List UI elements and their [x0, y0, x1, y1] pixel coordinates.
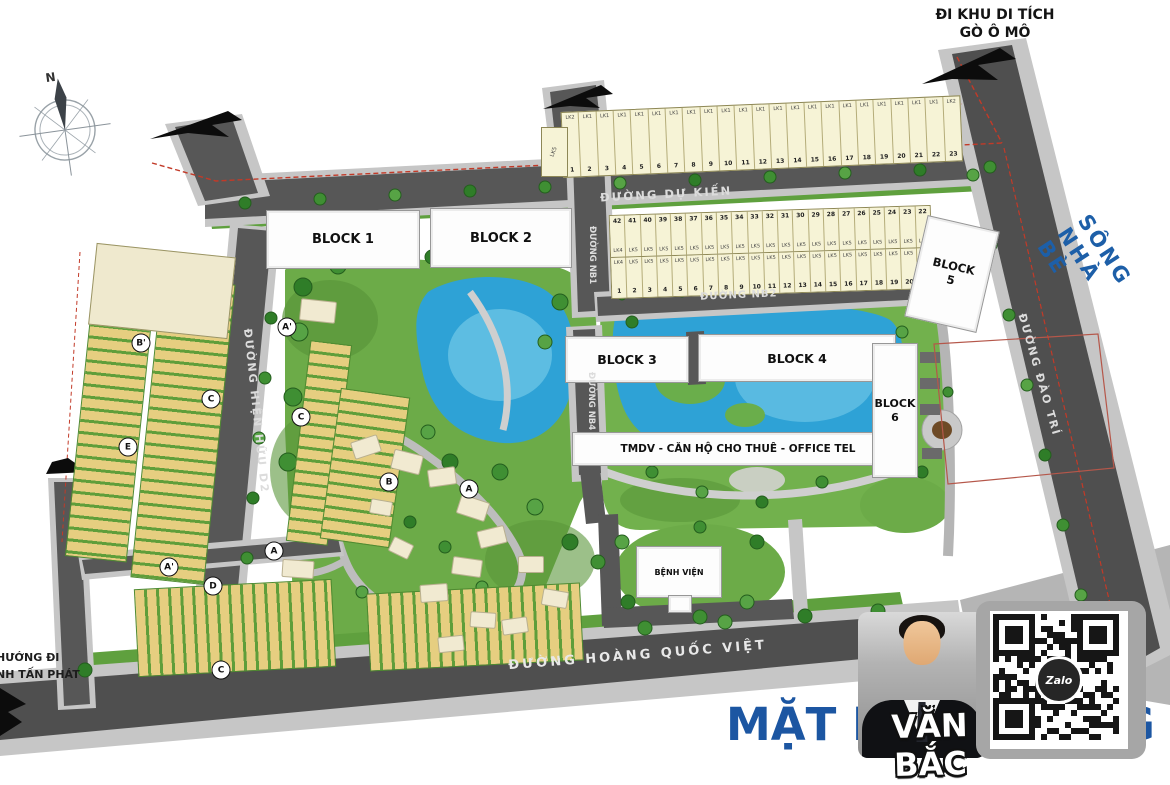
- di-tich-line2: GÒ Ô MÔ: [905, 24, 1085, 42]
- lot-cell: 37LK5: [685, 213, 702, 254]
- lot-cell: 40LK5: [639, 215, 656, 256]
- lot-cell: 24LK5: [884, 207, 901, 248]
- svg-text:N: N: [45, 70, 57, 85]
- building-block4: BLOCK 4: [698, 334, 896, 382]
- lot-cell: LK517: [854, 250, 871, 290]
- block6-label: BLOCK: [875, 397, 916, 410]
- lot-cell: LK52: [625, 257, 642, 297]
- lot-cell: 31LK5: [777, 210, 794, 251]
- lot-cell: 26LK5: [853, 208, 870, 249]
- building-hospital-wing: [668, 595, 692, 613]
- lot-cell: LK516: [839, 250, 856, 290]
- building-tmdv: TMDV - CĂN HỘ CHO THUÊ - OFFICE TEL: [572, 432, 904, 466]
- lk5-corner-lot: LK5: [541, 127, 568, 177]
- lot-cell: LK58: [717, 254, 734, 294]
- lot-cell: LK59: [732, 254, 749, 294]
- villa-lot: [437, 635, 465, 654]
- block1-label: BLOCK 1: [312, 232, 374, 247]
- block6-number: 6: [891, 411, 899, 424]
- lot-cell: 29LK5: [807, 209, 824, 250]
- road-label-nb1: ĐƯỜNG NB1: [587, 226, 597, 284]
- lot-cell: 36LK5: [700, 213, 717, 254]
- lot-cell: LK512: [778, 252, 795, 292]
- lot-cell: LK41: [611, 258, 627, 298]
- qr-code: Zalo: [990, 611, 1128, 749]
- hospital-label: BỆNH VIỆN: [654, 568, 703, 577]
- building-hospital: BỆNH VIỆN: [636, 546, 722, 598]
- road-label-nb4: ĐƯỜNG NB4: [586, 372, 596, 430]
- lot-cell: 39LK5: [655, 214, 672, 255]
- lot-cell: 38LK5: [670, 214, 687, 255]
- block2-label: BLOCK 2: [470, 231, 532, 246]
- lot-cell: 30LK5: [792, 210, 809, 251]
- lot-cell: LK515: [824, 251, 841, 291]
- villa-lot: [419, 583, 448, 603]
- compass-icon: N: [11, 63, 117, 182]
- di-tich-line1: ĐI KHU DI TÍCH: [905, 6, 1085, 24]
- zalo-label: Zalo: [1046, 674, 1073, 687]
- destination-label-go-o-mo: ĐI KHU DI TÍCH GÒ Ô MÔ: [905, 6, 1085, 42]
- villa-lot: [299, 298, 337, 324]
- lot-cell: 34LK5: [731, 212, 748, 253]
- lot-cell: 25LK5: [868, 207, 885, 248]
- building-block2: BLOCK 2: [430, 208, 572, 268]
- villa-lot: [518, 556, 544, 573]
- huong-di-line1: HƯỚNG ĐI: [0, 650, 80, 667]
- lot-cell: 42LK4: [610, 216, 626, 257]
- lot-cell: 28LK5: [823, 209, 840, 250]
- agent-face: [904, 621, 941, 665]
- zalo-logo-icon: Zalo: [1035, 656, 1083, 704]
- lot-cell: 27LK5: [838, 208, 855, 249]
- empty-lots: [88, 243, 236, 339]
- lot-cell: LK510: [748, 253, 765, 293]
- lot-cell: 41LK5: [624, 215, 641, 256]
- lot-strip-2: 42LK441LK540LK539LK538LK537LK536LK535LK5…: [609, 205, 933, 299]
- tmdv-label: TMDV - CĂN HỘ CHO THUÊ - OFFICE TEL: [621, 443, 856, 455]
- building-block6: BLOCK 6: [872, 343, 918, 478]
- building-block3: BLOCK 3: [565, 336, 689, 383]
- lk5-lot-label: LK5: [550, 146, 559, 158]
- lot-cell: LK514: [809, 251, 826, 291]
- road-label-huong-di: HƯỚNG ĐI NH TẤN PHÁT: [0, 650, 80, 683]
- block3-label: BLOCK 3: [597, 352, 657, 367]
- villa-lot: [469, 611, 496, 629]
- lot-cell: LK54: [656, 256, 673, 296]
- villa-lot: [427, 466, 457, 488]
- building-block1: BLOCK 1: [266, 210, 420, 269]
- agent-name: VĂN BẮC: [849, 705, 1011, 785]
- lot-cell: LK518: [870, 249, 887, 289]
- lot-cell: 23LK5: [899, 206, 916, 247]
- lot-cell: LK223: [942, 96, 962, 161]
- villa-lot: [281, 559, 314, 579]
- lot-cell: LK519: [885, 249, 902, 289]
- lot-cell: LK511: [763, 253, 780, 293]
- lot-cell: LK513: [793, 252, 810, 292]
- lot-cell: LK57: [702, 255, 719, 295]
- lot-cell: 33LK5: [746, 211, 763, 252]
- lot-cell: 32LK5: [762, 211, 779, 252]
- rowhouse-strip: [134, 579, 336, 677]
- lot-cell: LK55: [671, 256, 688, 296]
- lot-cell: 35LK5: [716, 212, 733, 253]
- lot-cell: LK56: [686, 255, 703, 295]
- block4-label: BLOCK 4: [767, 351, 827, 366]
- site-plan-canvas: N LK21LK12LK13LK14LK15LK16LK17LK18LK19LK…: [0, 0, 1170, 785]
- block5-number: 5: [945, 273, 956, 288]
- huong-di-line2: NH TẤN PHÁT: [0, 667, 80, 684]
- lot-cell: LK53: [641, 257, 658, 297]
